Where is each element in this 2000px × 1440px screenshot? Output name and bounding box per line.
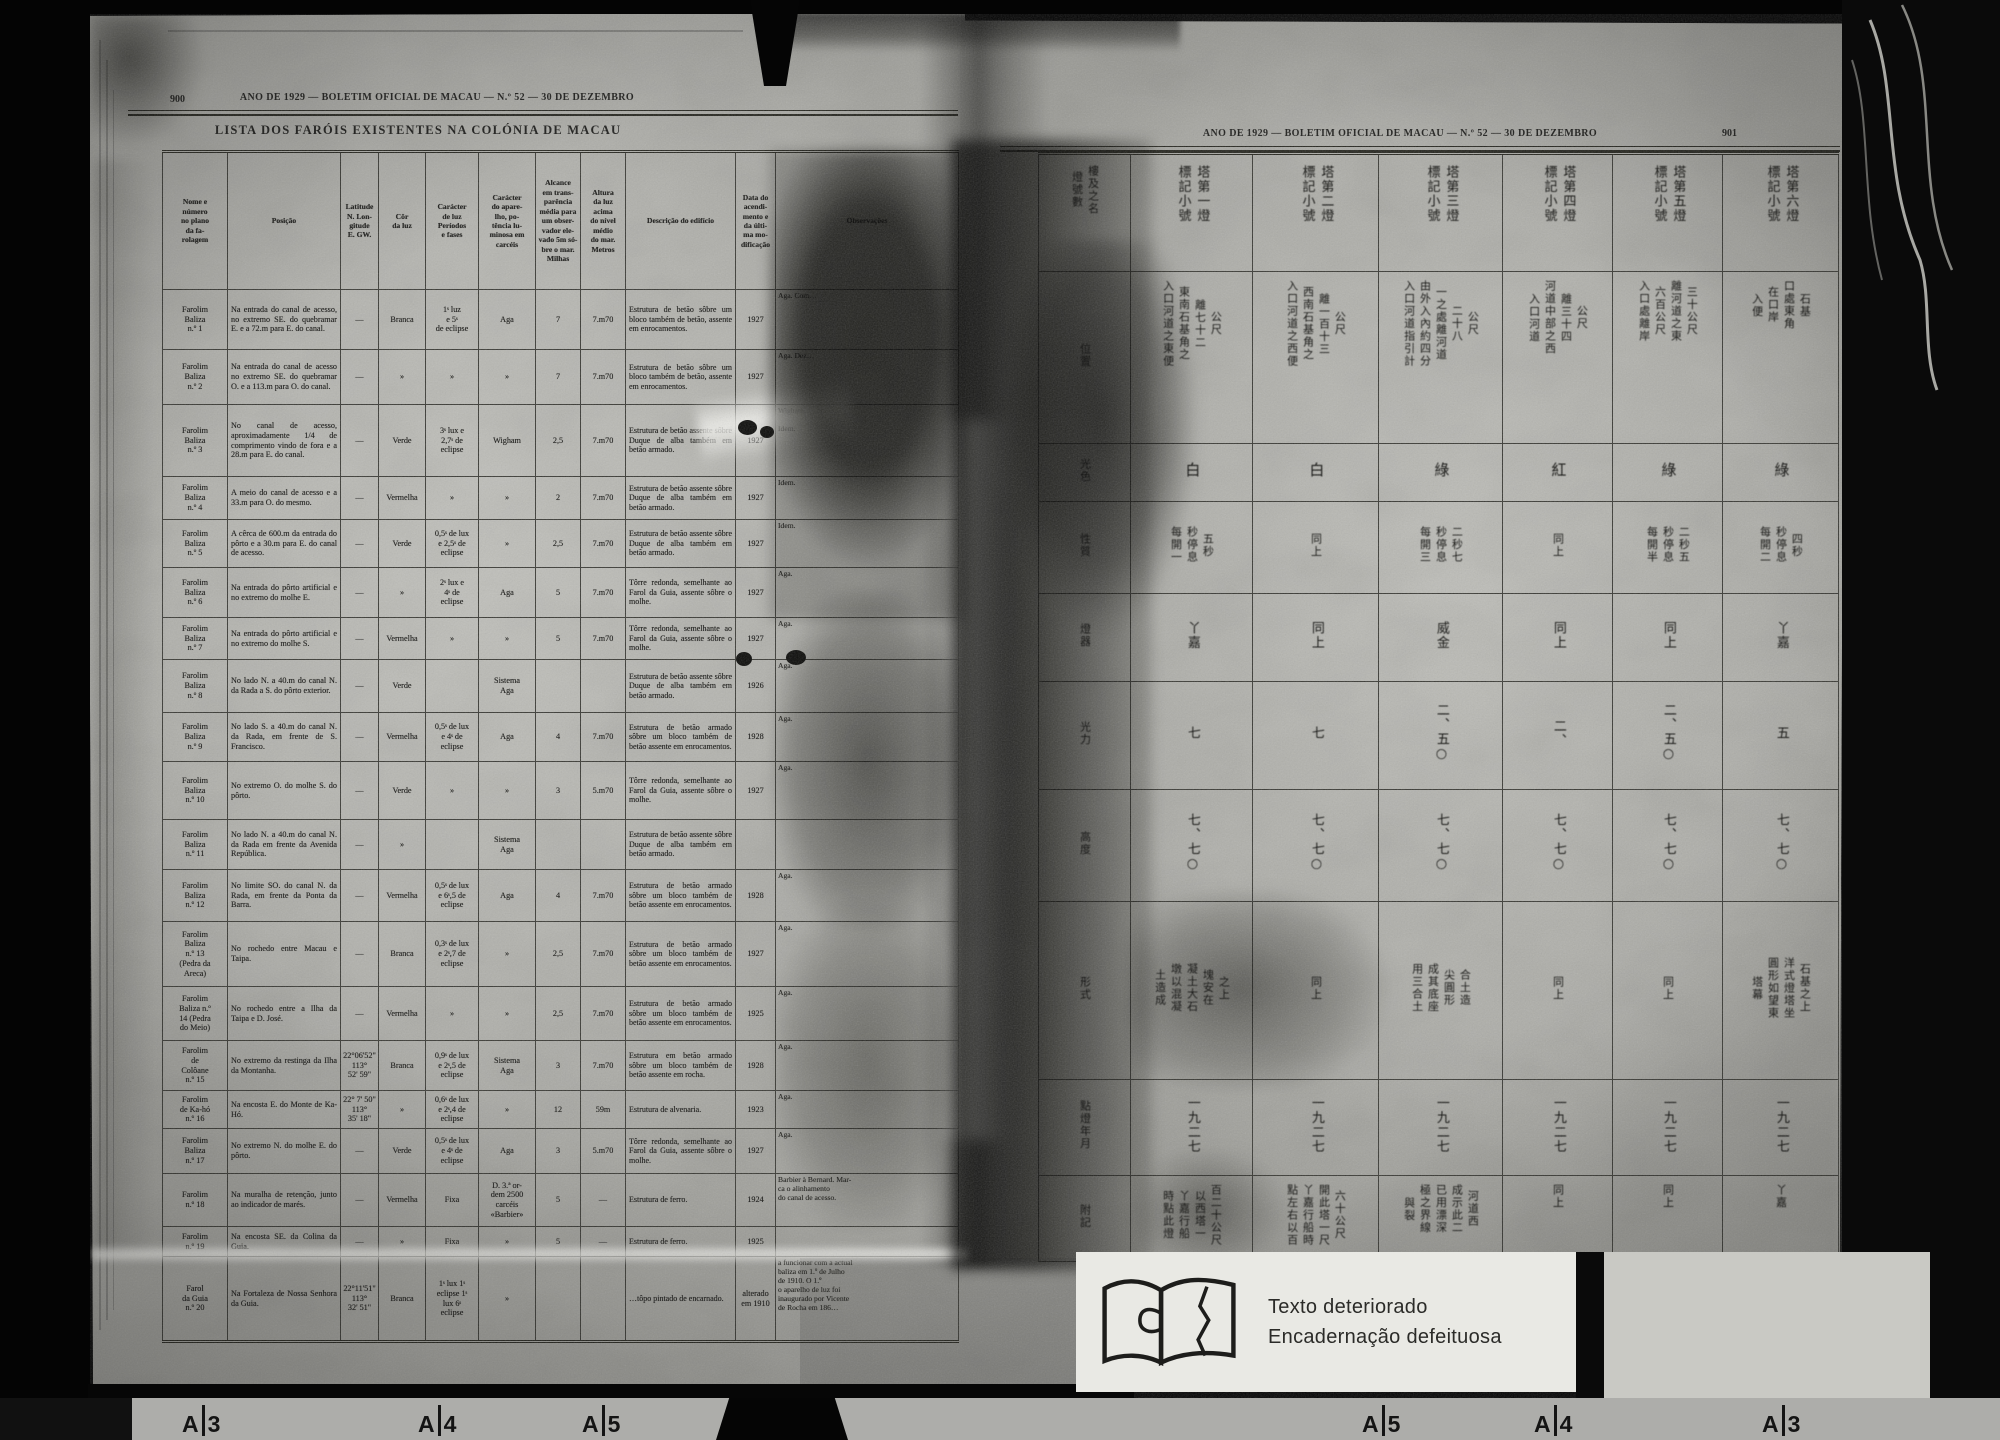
vertical-text: 七、七○ (1431, 813, 1450, 873)
vertical-text: 一九二七 (1658, 1096, 1677, 1154)
cell-name: Farolim Baliza n.º 17 (163, 1129, 228, 1174)
cell-range-miles (536, 1257, 581, 1342)
cell-description: Estrutura de betão assente sôbre Duque d… (626, 477, 736, 520)
vertical-text: 同上 (1550, 1184, 1566, 1209)
binding-hole (738, 420, 757, 435)
vertical-text: 石基 口處東角 在口岸 入便 (1749, 280, 1813, 330)
vertical-text: 公尺 離三十四 河道中部之西 入口河道 (1526, 280, 1590, 355)
cell-apparatus: Aga (479, 713, 536, 762)
film-marker: A3 (182, 1402, 220, 1436)
cell-notes: Aga. (776, 987, 959, 1041)
cell-color: Branca (379, 290, 426, 350)
cell-light-character: 0,5ˢ de lux e 6ˢ,5 de eclipse (426, 870, 479, 922)
right-row-character: 性質五秒 秒停息 每開一同上二秒七 秒停息 每開三同上二秒五 秒停息 每開半四秒… (1039, 502, 1839, 594)
left-column-header: Data do acendi- mento e da últi- ma mo- … (736, 152, 776, 290)
cell-name: Farolim Baliza n.º 5 (163, 520, 228, 568)
cell-apparatus: Aga (479, 1129, 536, 1174)
cell-latitude: — (341, 660, 379, 713)
page-edge-line (99, 40, 101, 1330)
note-right-panel (1604, 1252, 1930, 1398)
vertical-text: 丫嘉 (1773, 1184, 1789, 1209)
cell-color: Verde (379, 1129, 426, 1174)
cell-notes (776, 820, 959, 870)
cell-range-miles (536, 660, 581, 713)
right-cell-apparatus: 同上 (1253, 594, 1379, 682)
lighthouse-row: Farolim Baliza n.º 9No lado S. a 40.m do… (163, 713, 959, 762)
left-column-header: Posição (228, 152, 341, 290)
cell-apparatus: » (479, 1227, 536, 1257)
vertical-text: 性質 (1077, 533, 1093, 558)
vertical-text: 二、 (1548, 719, 1567, 748)
right-row-structure: 形式之上 塊安在 凝土大石 墩以混凝 土造成同上合土造 尖圓形 成其底座 用三合… (1039, 902, 1839, 1080)
cell-description: Tôrre redonda, semelhante ao Farol da Gu… (626, 762, 736, 820)
cell-notes: Aga. (776, 870, 959, 922)
vertical-text: 三十公尺 離河道之東 六百公尺 入口處離岸 (1636, 280, 1700, 343)
cell-notes: Idem. (776, 477, 959, 520)
right-cell-position: 公尺 離七十二 東南石基角之 入口河道之東便 (1131, 272, 1253, 444)
film-edge-right (1842, 0, 2000, 1400)
right-row-label: 形式 (1039, 902, 1131, 1080)
cell-description: Estrutura de betão armado sôbre um bloco… (626, 987, 736, 1041)
cell-color: Vermelha (379, 987, 426, 1041)
vertical-text: 公尺 二十八 一之處離河道 由外入內約四分 入口河道指引計 (1401, 280, 1481, 368)
cell-position: Na entrada do canal de acesso, no extrem… (228, 290, 341, 350)
right-cell-color: 白 (1253, 444, 1379, 502)
cell-color: Verde (379, 405, 426, 477)
cell-apparatus: » (479, 1257, 536, 1342)
cell-description: Estrutura de betão armado sôbre um bloco… (626, 713, 736, 762)
right-cell-structure: 同上 (1253, 902, 1379, 1080)
right-cell-character: 四秒 秒停息 每開二 (1723, 502, 1839, 594)
condition-note-panel: Texto deteriorado Encadernação defeituos… (1076, 1252, 1576, 1392)
cell-position: No canal de acesso, aproximadamente 1/4 … (228, 405, 341, 477)
cell-color: » (379, 1091, 426, 1129)
film-marker-letter: A (1362, 1413, 1379, 1436)
cell-name: Farolim Baliza n.º 13 (Pedra da Areca) (163, 922, 228, 987)
vertical-text: 塔第四燈 標記小號 (1539, 165, 1577, 223)
cell-light-character: » (426, 762, 479, 820)
note-line-2: Encadernação defeituosa (1268, 1322, 1502, 1352)
cell-name: Farolim de Colôane n.º 15 (163, 1041, 228, 1091)
cell-date: 1927 (736, 290, 776, 350)
cell-range-miles: 4 (536, 713, 581, 762)
right-cell-year: 一九二七 (1131, 1080, 1253, 1176)
left-column-header: Carácter de luz Períodos e fases (426, 152, 479, 290)
vertical-text: 同上 (1308, 533, 1324, 558)
cell-height-m: 7.m70 (581, 568, 626, 618)
vertical-text: 同上 (1660, 976, 1676, 1001)
right-cell-year: 一九二七 (1723, 1080, 1839, 1176)
vertical-text: 塔第三燈 標記小號 (1422, 165, 1460, 223)
cell-latitude: — (341, 290, 379, 350)
cell-date: 1927 (736, 405, 776, 477)
cell-height-m: 7.m70 (581, 922, 626, 987)
film-marker-bar (202, 1405, 205, 1436)
right-row-label: 位置 (1039, 272, 1131, 444)
lighthouse-row: Farolim Baliza n.º 7Na entrada do pôrto … (163, 618, 959, 660)
right-cell-year: 一九二七 (1379, 1080, 1503, 1176)
cell-range-miles: 12 (536, 1091, 581, 1129)
left-column-header: Observações (776, 152, 959, 290)
note-divider-bar (1576, 1252, 1604, 1398)
cell-light-character: 3ˢ lux e 2,7ˢ de eclipse (426, 405, 479, 477)
cell-description: Tôrre redonda, semelhante ao Farol da Gu… (626, 568, 736, 618)
right-cell-notes: 丫嘉 (1723, 1176, 1839, 1262)
cell-apparatus: » (479, 762, 536, 820)
cell-date (736, 820, 776, 870)
vertical-text: 一九二七 (1306, 1096, 1325, 1154)
lighthouse-row: Farolim Baliza n.º 4A meio do canal de a… (163, 477, 959, 520)
cell-date: 1923 (736, 1091, 776, 1129)
vertical-text: 七、七○ (1658, 813, 1677, 873)
film-marker-number: 4 (444, 1413, 457, 1436)
cell-date: alterado em 1910 (736, 1257, 776, 1342)
cell-notes: Aga. (776, 762, 959, 820)
cell-name: Farolim de Ka-hó n.º 16 (163, 1091, 228, 1129)
vertical-text: 同上 (1660, 1184, 1676, 1209)
left-column-header: Alcance em trans- parência média para um… (536, 152, 581, 290)
page-edge-line (168, 30, 743, 32)
cell-height-m: 7.m70 (581, 350, 626, 405)
vertical-text: 二秒七 秒停息 每開三 (1417, 526, 1465, 564)
lighthouse-row: Farolim Baliza n.º 8No lado N. a 40.m do… (163, 660, 959, 713)
right-cell-height: 七、七○ (1503, 790, 1613, 902)
vertical-text: 同上 (1658, 621, 1677, 650)
vertical-text: 一九二七 (1182, 1096, 1201, 1154)
cell-name: Farolim Baliza n.º 14 (Pedra do Meio) (163, 987, 228, 1041)
cell-apparatus: Aga (479, 290, 536, 350)
right-cell-year: 一九二七 (1253, 1080, 1379, 1176)
vertical-text: 五 (1771, 726, 1790, 741)
right-row-apparatus: 燈器丫嘉同上威金同上同上丫嘉 (1039, 594, 1839, 682)
vertical-text: 塔第五燈 標記小號 (1649, 165, 1687, 223)
cell-date: 1928 (736, 1041, 776, 1091)
film-marker-bar (1554, 1405, 1557, 1436)
cell-apparatus: » (479, 922, 536, 987)
cell-notes: Aga. (776, 568, 959, 618)
cell-range-miles: 2 (536, 477, 581, 520)
right-page-number: 901 (1722, 128, 1737, 139)
cell-apparatus: » (479, 520, 536, 568)
cell-name: Farolim Baliza n.º 4 (163, 477, 228, 520)
lighthouse-table: Nome e número no plano da fa- rolagemPos… (162, 150, 959, 1343)
cell-date: 1928 (736, 870, 776, 922)
document-title: LISTA DOS FARÓIS EXISTENTES NA COLÓNIA D… (162, 123, 674, 138)
vertical-text: 點燈年月 (1077, 1100, 1093, 1150)
right-row-label: 點燈年月 (1039, 1080, 1131, 1176)
cell-latitude: — (341, 762, 379, 820)
vertical-text: 二秒五 秒停息 每開半 (1644, 526, 1692, 564)
film-strip-dark (0, 1398, 132, 1440)
cell-color: Verde (379, 660, 426, 713)
cell-color: » (379, 820, 426, 870)
cell-height-m: — (581, 1227, 626, 1257)
cell-name: Farolim Baliza n.º 7 (163, 618, 228, 660)
cell-position: No rochedo entre a Ilha da Taipa e D. Jo… (228, 987, 341, 1041)
cell-date: 1927 (736, 1129, 776, 1174)
film-marker-letter: A (582, 1413, 599, 1436)
right-cell-structure: 之上 塊安在 凝土大石 墩以混凝 土造成 (1131, 902, 1253, 1080)
cell-apparatus: Sistema Aga (479, 660, 536, 713)
left-column-header: Latitude N. Lon- gitude E. GW. (341, 152, 379, 290)
cell-color: Branca (379, 1257, 426, 1342)
cell-name: Farolim Baliza n.º 12 (163, 870, 228, 922)
cell-position: Na encosta E. do Monte de Ka-Hó. (228, 1091, 341, 1129)
right-cell-structure: 石基之上 洋式燈塔坐 圓形如望東 塔幕 (1723, 902, 1839, 1080)
film-marker-number: 5 (608, 1413, 621, 1436)
lighthouse-row: Farolim Baliza n.º 13 (Pedra da Areca)No… (163, 922, 959, 987)
cell-height-m: 7.m70 (581, 520, 626, 568)
cell-color: Verde (379, 520, 426, 568)
cell-range-miles: 4 (536, 870, 581, 922)
right-cell-color: 綠 (1379, 444, 1503, 502)
cell-light-character: » (426, 987, 479, 1041)
right-cell-color: 綠 (1723, 444, 1839, 502)
cell-position: Na encosta SE. da Colina da Guia. (228, 1227, 341, 1257)
right-cell-year: 一九二七 (1613, 1080, 1723, 1176)
vertical-text: 樓及之名 燈號數 (1069, 165, 1101, 215)
cell-notes: Aga. (776, 1041, 959, 1091)
cell-position: No limite SO. do canal N. da Rada, em fr… (228, 870, 341, 922)
cell-color: Branca (379, 922, 426, 987)
film-marker-number: 3 (208, 1413, 221, 1436)
vertical-text: 燈器 (1077, 623, 1093, 648)
right-cell-power: 二、五○ (1379, 682, 1503, 790)
cell-latitude: — (341, 987, 379, 1041)
vertical-text: 塔第一燈 標記小號 (1173, 165, 1211, 223)
right-cell-apparatus: 同上 (1503, 594, 1613, 682)
right-column-header: 塔第五燈 標記小號 (1613, 154, 1723, 272)
cell-height-m: 7.m70 (581, 405, 626, 477)
cell-light-character: » (426, 350, 479, 405)
cell-range-miles: 5 (536, 618, 581, 660)
right-row-label: 光力 (1039, 682, 1131, 790)
right-cell-power: 二、 (1503, 682, 1613, 790)
cell-description: Estrutura de betão armado sôbre um bloco… (626, 870, 736, 922)
cell-latitude: — (341, 350, 379, 405)
cell-notes: Aga. (776, 660, 959, 713)
cell-position: Na entrada do canal de acesso no extremo… (228, 350, 341, 405)
film-marker-bar (602, 1405, 605, 1436)
cell-position: Na entrada do pôrto artificial e no extr… (228, 568, 341, 618)
cell-latitude: — (341, 1174, 379, 1227)
cell-apparatus: Sistema Aga (479, 1041, 536, 1091)
left-column-header: Nome e número no plano da fa- rolagem (163, 152, 228, 290)
cell-color: Vermelha (379, 1174, 426, 1227)
cell-latitude: — (341, 520, 379, 568)
cell-height-m: 7.m70 (581, 618, 626, 660)
right-cell-power: 七 (1253, 682, 1379, 790)
vertical-text: 光力 (1077, 721, 1093, 746)
vertical-text: 綠 (1430, 462, 1452, 479)
cell-date: 1927 (736, 350, 776, 405)
right-cell-height: 七、七○ (1723, 790, 1839, 902)
right-cell-power: 七 (1131, 682, 1253, 790)
cell-position: No rochedo entre Macau e Taipa. (228, 922, 341, 987)
cell-latitude: — (341, 922, 379, 987)
film-marker: A4 (1534, 1402, 1572, 1436)
vertical-text: 綠 (1657, 462, 1679, 479)
vertical-text: 附記 (1077, 1204, 1093, 1229)
lighthouse-row: Farolim de Colôane n.º 15No extremo da r… (163, 1041, 959, 1091)
cell-color: Verde (379, 762, 426, 820)
film-strip-notch (716, 1398, 848, 1440)
cell-range-miles: 7 (536, 290, 581, 350)
vertical-text: 四秒 秒停息 每開二 (1757, 526, 1805, 564)
right-column-header: 塔第六燈 標記小號 (1723, 154, 1839, 272)
cell-light-character: 0,5ˢ de lux e 2,5ˢ de eclipse (426, 520, 479, 568)
cell-light-character (426, 820, 479, 870)
right-cell-height: 七、七○ (1613, 790, 1723, 902)
vertical-text: 光色 (1077, 458, 1093, 483)
film-marker-letter: A (1762, 1413, 1779, 1436)
cell-light-character: 2ˢ lux e 4ˢ de eclipse (426, 568, 479, 618)
vertical-text: 丫嘉 (1182, 621, 1201, 650)
lighthouse-row: Farolim Baliza n.º 10No extremo O. do mo… (163, 762, 959, 820)
cell-latitude: 22° 7' 50" 113° 35' 18" (341, 1091, 379, 1129)
note-line-1: Texto deteriorado (1268, 1292, 1502, 1322)
cell-light-character: 0,3ˢ de lux e 2ˢ,7 de eclipse (426, 922, 479, 987)
cell-range-miles: 2,5 (536, 922, 581, 987)
film-strip (0, 1398, 2000, 1440)
cell-color: » (379, 568, 426, 618)
right-cell-apparatus: 丫嘉 (1131, 594, 1253, 682)
cell-color: Vermelha (379, 618, 426, 660)
film-marker-letter: A (418, 1413, 435, 1436)
right-row-label: 光色 (1039, 444, 1131, 502)
vertical-text: 塔第二燈 標記小號 (1297, 165, 1335, 223)
cell-light-character: Fixa (426, 1174, 479, 1227)
vertical-text: 五秒 秒停息 每開一 (1168, 526, 1216, 564)
cell-color: Vermelha (379, 477, 426, 520)
right-column-header: 塔第二燈 標記小號 (1253, 154, 1379, 272)
film-marker-number: 3 (1788, 1413, 1801, 1436)
film-marker-number: 4 (1560, 1413, 1573, 1436)
cell-position: No lado S. a 40.m do canal N. da Rada, e… (228, 713, 341, 762)
right-cell-character: 五秒 秒停息 每開一 (1131, 502, 1253, 594)
cell-latitude: — (341, 477, 379, 520)
right-cell-height: 七、七○ (1131, 790, 1253, 902)
cell-date: 1927 (736, 762, 776, 820)
cell-date: 1927 (736, 568, 776, 618)
cell-light-character: 0,5ˢ de lux e 4ˢ de eclipse (426, 713, 479, 762)
vertical-text: 一九二七 (1548, 1096, 1567, 1154)
cell-position: No extremo da restinga da Ilha da Montan… (228, 1041, 341, 1091)
right-cell-power: 二、五○ (1613, 682, 1723, 790)
cell-latitude: — (341, 820, 379, 870)
right-column-header: 塔第一燈 標記小號 (1131, 154, 1253, 272)
vertical-text: 六十公尺 開此塔一尺 丫嘉行船時 點左右以百 (1284, 1184, 1348, 1247)
lighthouse-row: Farolim Baliza n.º 5A cêrca de 600.m da … (163, 520, 959, 568)
vertical-text: 七 (1182, 726, 1201, 741)
right-row-power: 光力七七二、五○二、二、五○五 (1039, 682, 1839, 790)
cell-range-miles: 2,5 (536, 987, 581, 1041)
cell-height-m: 7.m70 (581, 870, 626, 922)
cell-notes: Idem. (776, 520, 959, 568)
vertical-text: 綠 (1770, 462, 1792, 479)
vertical-text: 一九二七 (1771, 1096, 1790, 1154)
cell-name: Farolim Baliza n.º 8 (163, 660, 228, 713)
cell-height-m: 7.m70 (581, 1041, 626, 1091)
cell-apparatus: » (479, 987, 536, 1041)
vertical-text: 一九二七 (1431, 1096, 1450, 1154)
cell-description: Estrutura de betão sôbre um bloco também… (626, 350, 736, 405)
cell-height-m: 7.m70 (581, 987, 626, 1041)
film-edge-left (0, 0, 90, 1440)
vertical-text: 石基之上 洋式燈塔坐 圓形如望東 塔幕 (1749, 957, 1813, 1020)
cell-height-m: — (581, 1174, 626, 1227)
damaged-book-icon (1094, 1267, 1244, 1377)
cell-height-m: 5.m70 (581, 762, 626, 820)
vertical-text: 七、七○ (1548, 813, 1567, 873)
cell-position: A cêrca de 600.m da entrada do pôrto e a… (228, 520, 341, 568)
vertical-text: 同上 (1548, 621, 1567, 650)
vertical-text: 白 (1305, 462, 1327, 479)
vertical-text: 七 (1306, 726, 1325, 741)
right-cell-color: 白 (1131, 444, 1253, 502)
cell-description: Estrutura de ferro. (626, 1174, 736, 1227)
cell-notes (776, 1227, 959, 1257)
vertical-text: 河道西 成示此二 已用漂深 極之界線 與裂 (1401, 1184, 1481, 1234)
cell-color: Branca (379, 1041, 426, 1091)
lighthouse-row: Farolim de Ka-hó n.º 16Na encosta E. do … (163, 1091, 959, 1129)
cell-name: Farolim Baliza n.º 1 (163, 290, 228, 350)
cell-description: …tôpo pintado de encarnado. (626, 1257, 736, 1342)
lighthouse-row: Farolim Baliza n.º 11No lado N. a 40.m d… (163, 820, 959, 870)
vertical-text: 二、五○ (1658, 703, 1677, 763)
right-cell-height: 七、七○ (1253, 790, 1379, 902)
right-cell-apparatus: 丫嘉 (1723, 594, 1839, 682)
vertical-text: 二、五○ (1431, 703, 1450, 763)
cell-height-m (581, 1257, 626, 1342)
film-marker-letter: A (1534, 1413, 1551, 1436)
vertical-text: 公尺 離七十二 東南石基角之 入口河道之東便 (1160, 280, 1224, 368)
right-cell-structure: 同上 (1613, 902, 1723, 1080)
right-column-header: 塔第四燈 標記小號 (1503, 154, 1613, 272)
cell-date: 1927 (736, 520, 776, 568)
cell-range-miles: 2,5 (536, 520, 581, 568)
cell-name: Farolim n.º 18 (163, 1174, 228, 1227)
cell-range-miles: 3 (536, 1129, 581, 1174)
left-column-header: Descrição do edifício (626, 152, 736, 290)
film-marker: A3 (1762, 1402, 1800, 1436)
cell-light-character: » (426, 618, 479, 660)
cell-color: » (379, 350, 426, 405)
cell-description: Estrutura de betão assente sôbre Duque d… (626, 820, 736, 870)
vertical-text: 百二十公尺 以西塔一 丫嘉行船 時點此燈 (1160, 1184, 1224, 1247)
cell-position: No extremo O. do molhe S. do pôrto. (228, 762, 341, 820)
cell-description: Estrutura de alvenaria. (626, 1091, 736, 1129)
cell-name: Farolim Baliza n.º 6 (163, 568, 228, 618)
vertical-text: 位置 (1077, 343, 1093, 368)
right-cell-structure: 同上 (1503, 902, 1613, 1080)
lighthouse-row: Farolim Baliza n.º 14 (Pedra do Meio)No … (163, 987, 959, 1041)
cell-height-m: 5.m70 (581, 1129, 626, 1174)
right-cell-position: 三十公尺 離河道之東 六百公尺 入口處離岸 (1613, 272, 1723, 444)
cell-light-character: Fixa (426, 1227, 479, 1257)
right-running-header: ANO DE 1929 — BOLETIM OFICIAL DE MACAU —… (1100, 128, 1700, 139)
cell-notes: Aga. (776, 1129, 959, 1174)
cell-light-character: 0,6ˢ de lux e 2ˢ,4 de eclipse (426, 1091, 479, 1129)
vertical-text: 威金 (1431, 621, 1450, 650)
cell-date: 1925 (736, 987, 776, 1041)
cell-position: No extremo N. do molhe E. do pôrto. (228, 1129, 341, 1174)
cell-name: Farolim Baliza n.º 11 (163, 820, 228, 870)
cell-apparatus: Wigham (479, 405, 536, 477)
cell-latitude: 22°06'52" 113° 52' 59" (341, 1041, 379, 1091)
film-marker: A4 (418, 1402, 456, 1436)
cell-description: Estrutura em betão armado sôbre um bloco… (626, 1041, 736, 1091)
